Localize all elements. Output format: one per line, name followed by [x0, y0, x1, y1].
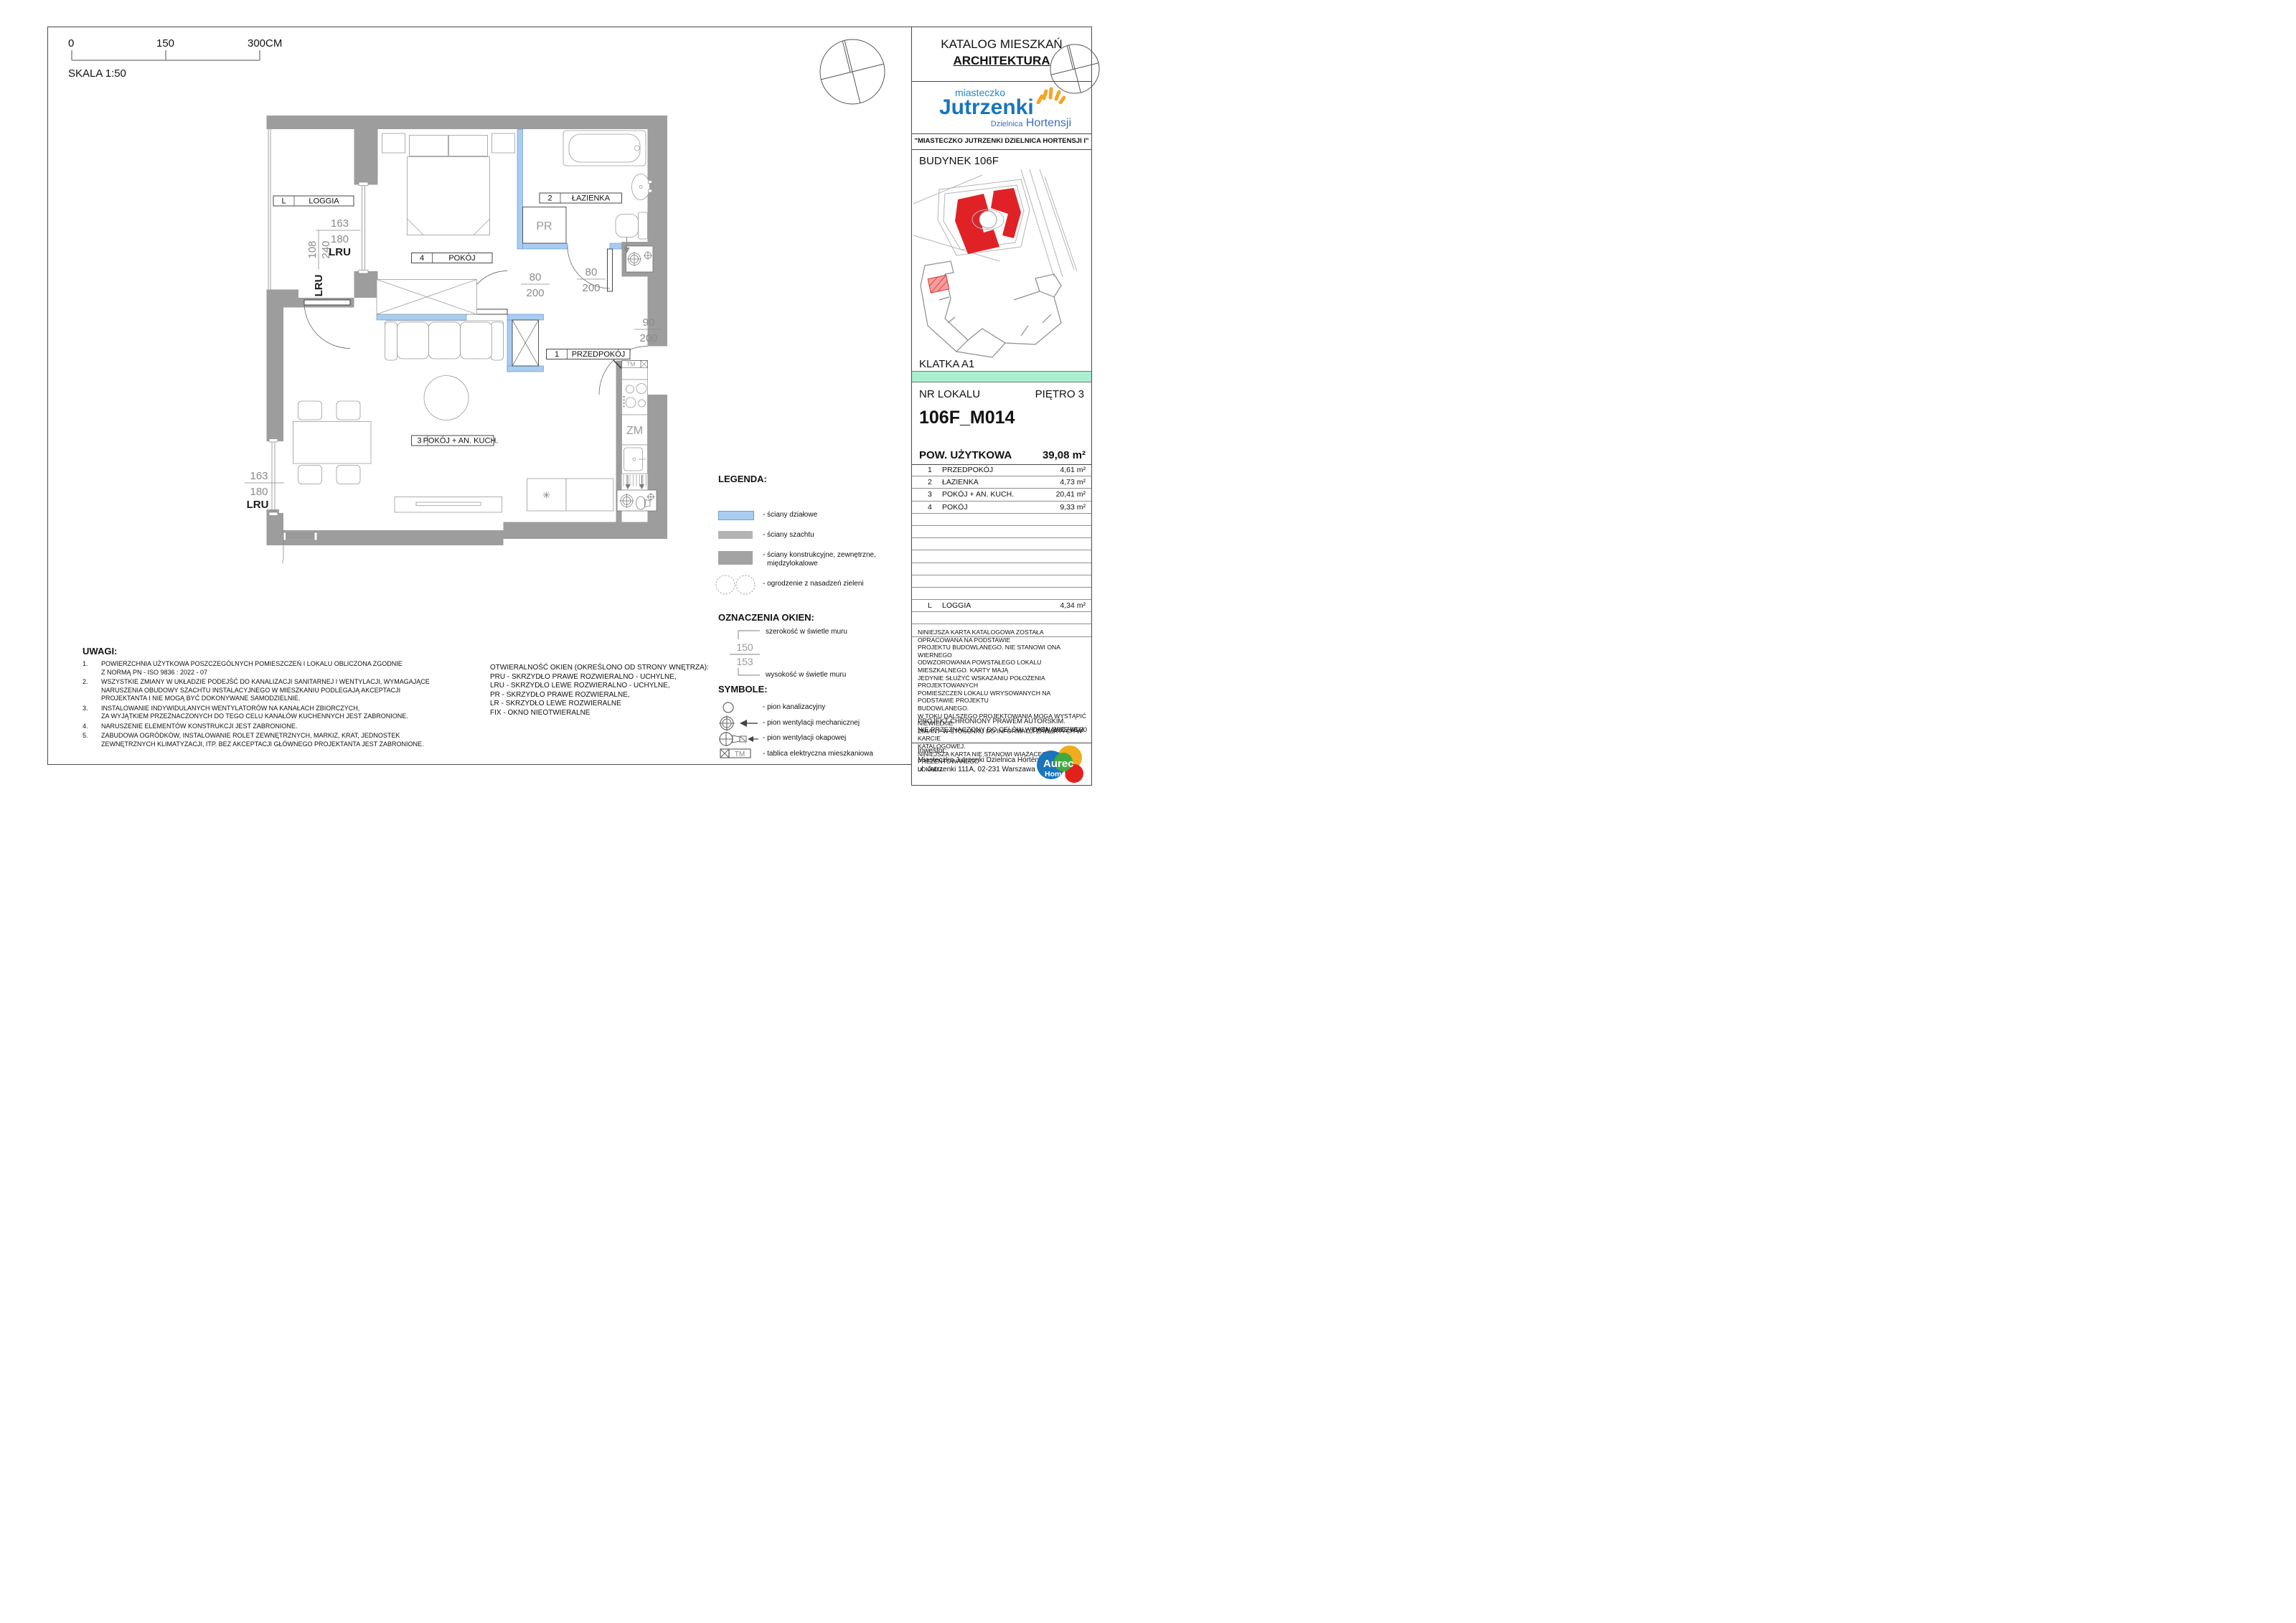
svg-text:LRU: LRU — [247, 499, 269, 511]
uwagi-item: NARUSZENIE ELEMENTÓW KONSTRUKCJI JEST ZA… — [101, 723, 456, 731]
window-opening-legend: OTWIERALNOŚĆ OKIEN (OKREŚLONO OD STRONY … — [490, 664, 712, 718]
svg-text:80: 80 — [585, 266, 598, 278]
area-header: POW. UŻYTKOWA 39,08 m² — [912, 446, 1091, 465]
uwagi-title: UWAGI: — [83, 646, 456, 657]
fridge: ✳ — [527, 479, 567, 511]
staircase-label: KLATKA A1 — [919, 358, 974, 370]
legend-swatch-partition — [718, 511, 754, 520]
wardrobe — [377, 280, 477, 315]
loggia-door-arc — [304, 303, 350, 349]
svg-text:Home: Home — [1045, 770, 1065, 778]
tag-living-no: 3 — [417, 437, 421, 446]
unit-id: 106F_M014 — [919, 408, 1015, 428]
uwagi-item: WSZYSTKIE ZMIANY W UKŁADZIE PODEJŚĆ DO K… — [101, 678, 456, 703]
uwagi-num: 4. — [83, 723, 101, 731]
uwagi-section: UWAGI: 1. POWIERZCHNIA UŻYTKOWA POSZCZEG… — [83, 646, 456, 748]
svg-text:108: 108 — [306, 240, 319, 258]
tag-loggia-name: LOGGIA — [309, 197, 339, 206]
otwieralnosc-line: LR - SKRZYDŁO LEWE ROZWIERALNE — [490, 700, 712, 709]
dishwasher: ZM — [622, 415, 648, 445]
entry-opening — [648, 347, 668, 395]
sofa — [385, 321, 504, 360]
svg-text:200: 200 — [582, 282, 600, 294]
table-row-empty — [912, 588, 1091, 600]
svg-text:240: 240 — [320, 240, 332, 258]
title-block: KATALOG MIESZKAŃ ARCHITEKTURA miasteczko… — [911, 27, 1092, 786]
greenery-icon — [714, 573, 758, 597]
legend-label: - ogrodzenie z nasadzeń zieleni — [763, 580, 864, 588]
window-markings-section: OZNACZENIA OKIEN: 150 153 szerokość w św… — [718, 612, 905, 623]
legend-title: LEGENDA: — [718, 474, 905, 484]
symbols-label: - pion wentylacji okapowej — [763, 734, 846, 742]
investor-address: ul. Jutrzenki 111A, 02-231 Warszawa — [918, 766, 1035, 773]
uwagi-num: 1. — [83, 660, 101, 677]
investor-box: Inwestor: Miasteczko Jutrzenki Dzielnica… — [912, 743, 1091, 786]
height-label: wysokość w świetle muru — [766, 671, 846, 679]
table-row-empty — [912, 575, 1091, 588]
kitchen-sink — [622, 445, 648, 474]
window-dim-example: 150 153 — [728, 628, 763, 678]
uwagi-num: 3. — [83, 705, 101, 721]
symbols-label: - pion kanalizacyjny — [763, 703, 825, 711]
uwagi-num: 5. — [83, 732, 101, 748]
otwieralnosc-line: PR - SKRZYDŁO PRAWE ROZWIERALNE, — [490, 691, 712, 700]
mech-vent-icon — [718, 715, 758, 731]
investor-label: Inwestor: — [918, 747, 947, 755]
fridge-symbol: ✳ — [542, 489, 551, 501]
floor-plan: ✳ PR TM — [237, 100, 678, 563]
table-row-empty — [912, 538, 1091, 550]
otwieralnosc-line: OTWIERALNOŚĆ OKIEN (OKREŚLONO OD STRONY … — [490, 664, 712, 673]
loggia-door-leaf — [304, 300, 350, 305]
otwieralnosc-line: LRU - SKRZYDŁO LEWE ROZWIERALNO - UCHYLN… — [490, 682, 712, 691]
unit-row: NR LOKALU PIĘTRO 3 — [912, 381, 1091, 405]
svg-text:180: 180 — [331, 233, 349, 245]
svg-text:90: 90 — [643, 316, 655, 329]
project-name: "MIASTECZKO JUTRZENKI DZIELNICA HORTENSJ… — [912, 133, 1091, 150]
table-row: 3POKÓJ + AN. KUCH.20,41 m² — [912, 489, 1091, 501]
area-table: 1PRZEDPOKÓJ4,61 m² 2ŁAZIENKA4,73 m² 3POK… — [912, 464, 1091, 637]
legend-label: - ściany szachtu — [763, 531, 814, 539]
scale-tick-300: 300CM — [248, 37, 282, 50]
tag-loggia-no: L — [281, 197, 286, 206]
legend-swatch-shaft — [718, 531, 753, 539]
electric-board-icon: TM — [720, 748, 757, 758]
svg-text:80: 80 — [530, 271, 542, 283]
legend-label: - ściany konstrukcyjne, zewnętrzne,międz… — [763, 551, 876, 568]
logo-district: Dzielnica Hortensji — [991, 117, 1071, 130]
installation-shaft — [512, 320, 539, 366]
tv-cabinet — [395, 497, 502, 513]
table-row: 1PRZEDPOKÓJ4,61 m² — [912, 464, 1091, 476]
round-table — [424, 376, 469, 420]
unit-label: NR LOKALU — [919, 388, 980, 400]
table-row-empty — [912, 526, 1091, 538]
table-row-empty — [912, 612, 1091, 624]
width-label: szerokość w świetle muru — [766, 628, 847, 636]
scale-label: SKALA 1:50 — [68, 67, 126, 80]
svg-text:150: 150 — [736, 641, 753, 653]
north-symbol — [818, 37, 887, 106]
svg-text:TM: TM — [735, 751, 745, 758]
kitchen-run: TM ZM — [622, 361, 648, 490]
uwagi-item: ZABUDOWA OGRÓDKÓW, INSTALOWANIE ROLET ZE… — [101, 732, 456, 748]
table-row-empty — [912, 563, 1091, 575]
legend-label: - ściany działowe — [763, 511, 817, 519]
svg-text:Aurec: Aurec — [1043, 758, 1074, 770]
hood-vent-icon — [718, 731, 758, 747]
symbols-label: - pion wentylacji mechanicznej — [763, 719, 860, 727]
bed — [382, 133, 515, 235]
tag-living-name: POKÓJ + AN. KUCH. — [423, 436, 499, 446]
uwagi-item: POWIERZCHNIA UŻYTKOWA POSZCZEGÓLNYCH POM… — [101, 660, 456, 677]
copyright-line2: NIE PRZEZNACZONY DO CELÓW WYKONAWCZYCH. … — [918, 726, 1087, 735]
symbols-section: SYMBOLE: - pion kanalizacyjny - pion wen… — [718, 684, 919, 695]
uwagi-item: INSTALOWANIE INDYWIDULANYCH WENTYLATORÓW… — [101, 705, 456, 721]
sewage-stack-icon — [721, 701, 757, 714]
scale-bar: 0 150 300CM SKALA 1:50 — [65, 34, 294, 85]
svg-text:200: 200 — [639, 332, 657, 344]
tag-bedroom-no: 4 — [420, 254, 424, 263]
svg-text:180: 180 — [250, 486, 268, 498]
site-north-symbol — [1049, 43, 1101, 95]
kitchen-cabinet — [566, 479, 613, 511]
window-markings-title: OZNACZENIA OKIEN: — [718, 612, 905, 623]
tag-hall-no: 1 — [555, 350, 559, 359]
area-label: POW. UŻYTKOWA — [919, 449, 1012, 461]
logo-jutrzenki: Jutrzenki — [939, 95, 1034, 120]
otwieralnosc-line: FIX - OKNO NIEOTWIERALNE — [490, 709, 712, 718]
legend-swatch-structural — [718, 551, 753, 565]
svg-text:163: 163 — [331, 217, 349, 230]
copyright: PROJEKT CHRONIONY PRAWEM AUTORSKIM. NIE … — [918, 718, 1087, 734]
otwieralnosc-line: PRU - SKRZYDŁO PRAWE ROZWIERALNO - UCHYL… — [490, 673, 712, 682]
building-label: BUDYNEK 106F — [919, 155, 999, 167]
cooktop — [622, 380, 648, 415]
svg-text:ZM: ZM — [626, 425, 643, 437]
table-row-loggia: LLOGGIA4,34 m² — [912, 600, 1091, 612]
scale-tick-150: 150 — [156, 37, 174, 50]
table-row: 2ŁAZIENKA4,73 m² — [912, 476, 1091, 489]
scale-bar-rule — [65, 50, 294, 62]
table-row: 4POKÓJ9,33 m² — [912, 502, 1091, 514]
svg-text:LRU: LRU — [313, 275, 325, 297]
washer-niche: PR — [523, 207, 567, 244]
table-row-empty — [912, 514, 1091, 526]
table-row-empty — [912, 550, 1091, 563]
symbols-title: SYMBOLE: — [718, 684, 919, 695]
catalog-sheet: 0 150 300CM SKALA 1:50 — [0, 0, 1148, 812]
tm-label: TM — [626, 361, 635, 368]
building-section: BUDYNEK 106F — [912, 149, 1091, 363]
copyright-line1: PROJEKT CHRONIONY PRAWEM AUTORSKIM. — [918, 718, 1087, 726]
aurec-home-logo: Aurec Home — [1034, 745, 1088, 785]
bathtub — [563, 131, 646, 166]
date-label: DATA_2025-08-20 — [1032, 726, 1087, 735]
svg-text:153: 153 — [736, 656, 753, 667]
tag-bath-name: ŁAZIENKA — [572, 194, 611, 203]
bathroom-door-leaf — [608, 249, 613, 291]
symbols-label: - tablica elektryczna mieszkaniowa — [763, 750, 873, 758]
scale-tick-0: 0 — [68, 37, 74, 50]
dining-set — [293, 401, 372, 484]
washer-label: PR — [536, 220, 552, 232]
tag-bedroom-name: POKÓJ — [448, 253, 475, 263]
tag-hall-name: PRZEDPOKÓJ — [572, 349, 626, 359]
floor-label: PIĘTRO 3 — [1035, 388, 1084, 400]
tag-bath-no: 2 — [547, 194, 552, 203]
area-value: 39,08 m² — [1043, 449, 1086, 461]
key-plan — [913, 257, 1090, 363]
svg-text:200: 200 — [526, 287, 544, 299]
svg-text:163: 163 — [250, 470, 268, 482]
uwagi-num: 2. — [83, 678, 101, 703]
legend-section: LEGENDA: - ściany działowe - ściany szac… — [718, 474, 905, 484]
